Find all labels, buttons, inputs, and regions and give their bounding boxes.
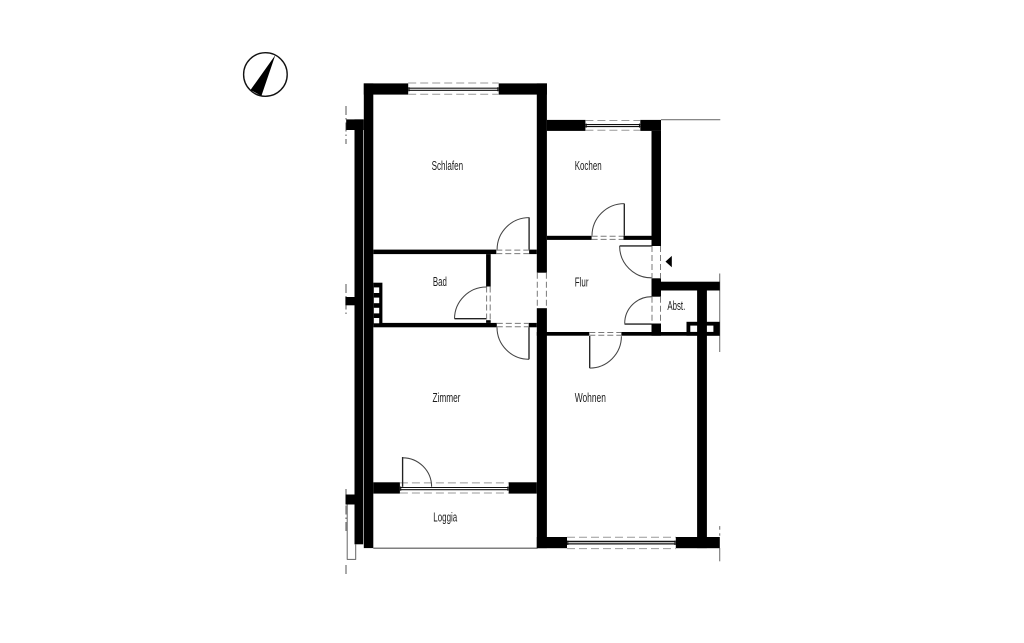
svg-text:Abst.: Abst. <box>667 298 685 313</box>
svg-text:Kochen: Kochen <box>575 158 602 173</box>
svg-text:Wohnen: Wohnen <box>575 390 606 405</box>
svg-text:Schlafen: Schlafen <box>432 158 464 173</box>
svg-text:Loggia: Loggia <box>433 509 457 524</box>
svg-text:Flur: Flur <box>575 274 589 289</box>
svg-text:Zimmer: Zimmer <box>433 390 461 405</box>
svg-text:Bad: Bad <box>433 274 447 289</box>
